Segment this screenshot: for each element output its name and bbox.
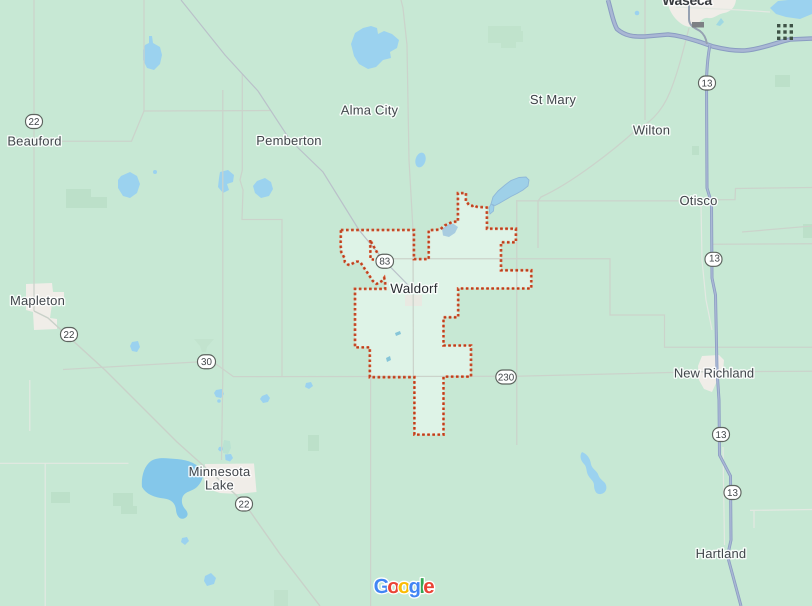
svg-text:Mapleton: Mapleton <box>10 293 65 308</box>
svg-text:13: 13 <box>716 430 727 441</box>
svg-text:30: 30 <box>201 357 212 368</box>
svg-text:Wilton: Wilton <box>633 123 670 138</box>
svg-text:22: 22 <box>29 117 40 128</box>
svg-text:Waseca: Waseca <box>662 0 712 8</box>
svg-text:Beauford: Beauford <box>7 134 61 149</box>
svg-text:Otisco: Otisco <box>679 193 717 208</box>
svg-text:230: 230 <box>498 372 515 383</box>
svg-text:13: 13 <box>702 78 713 89</box>
svg-text:Waldorf: Waldorf <box>390 281 437 296</box>
svg-text:83: 83 <box>379 257 390 268</box>
svg-text:Hartland: Hartland <box>696 546 747 561</box>
svg-text:St Mary: St Mary <box>530 92 576 107</box>
svg-text:e: e <box>423 575 434 598</box>
svg-text:New Richland: New Richland <box>674 366 754 381</box>
svg-text:Pemberton: Pemberton <box>256 133 321 148</box>
svg-text:22: 22 <box>239 499 250 510</box>
svg-text:22: 22 <box>64 330 75 341</box>
svg-text:13: 13 <box>709 253 720 264</box>
svg-text:13: 13 <box>727 488 738 499</box>
svg-text:Alma City: Alma City <box>341 103 399 118</box>
svg-text:Lake: Lake <box>205 478 234 493</box>
